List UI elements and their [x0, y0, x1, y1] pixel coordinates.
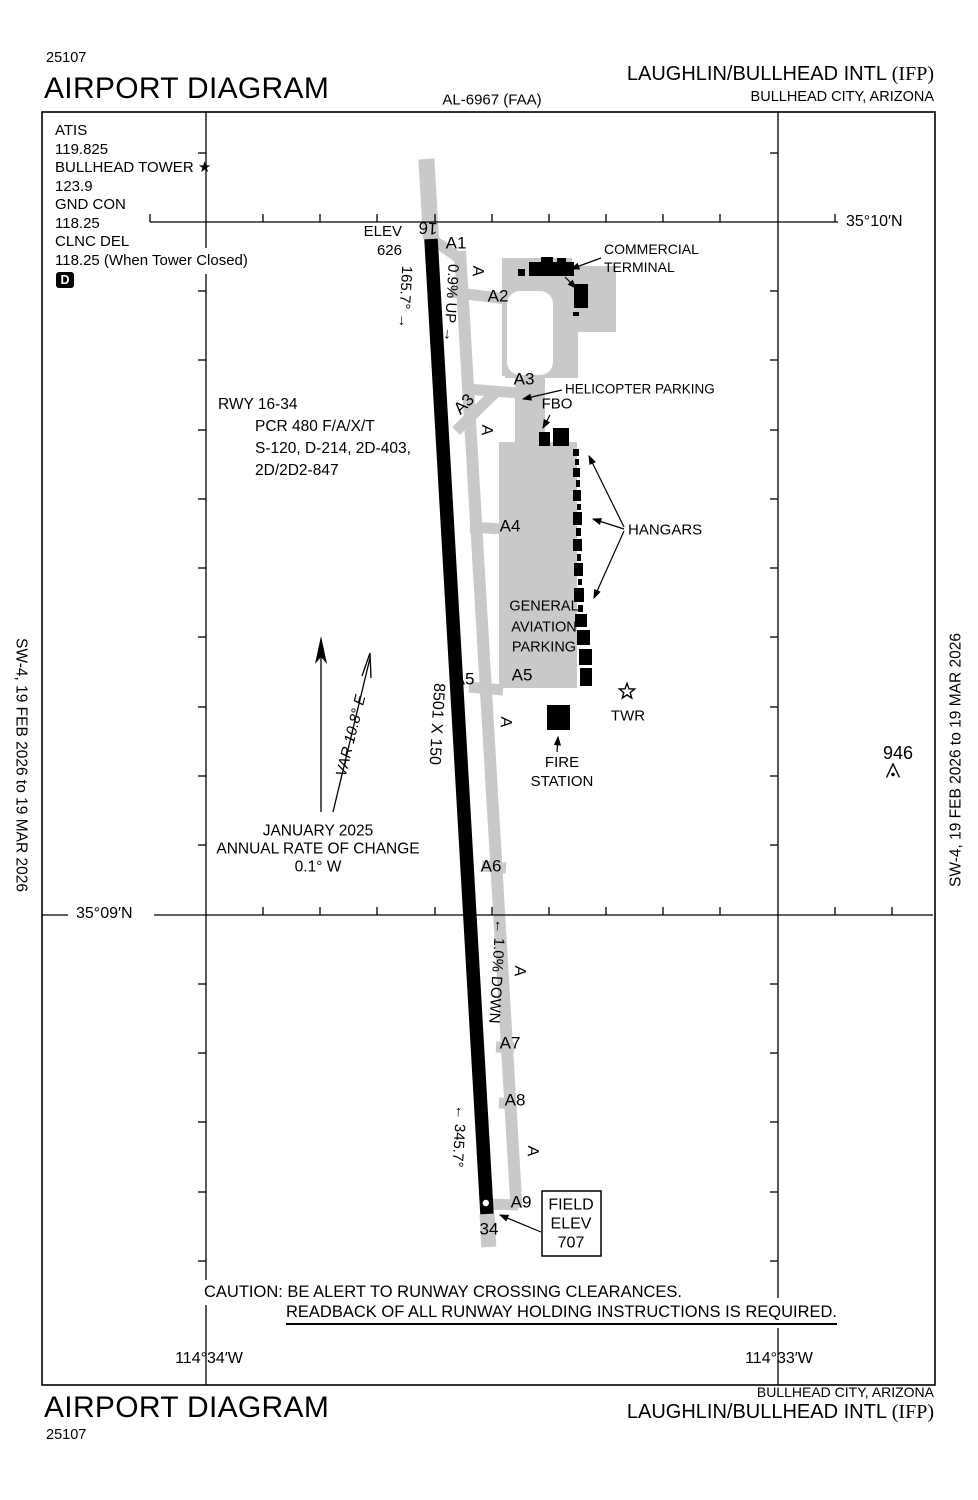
comm-line: 118.25	[55, 215, 248, 234]
hangars-label: HANGARS	[628, 523, 702, 540]
comm-line: CLNC DEL	[55, 233, 248, 252]
taxiway-label-a: A	[523, 1145, 541, 1157]
runway-34-number: 34	[480, 1219, 499, 1238]
tower-label: TWR	[611, 709, 645, 726]
taxiway-label-a2: A2	[488, 286, 509, 305]
lon-left-label: 114°34′W	[175, 1350, 243, 1368]
comm-frequencies-box: ATIS 119.825 BULLHEAD TOWER ★ 123.9 GND …	[55, 122, 248, 270]
caution-line2: READBACK OF ALL RUNWAY HOLDING INSTRUCTI…	[286, 1303, 837, 1325]
airport-id-text: (IFP)	[892, 1401, 934, 1423]
fire-station-line: STATION	[531, 772, 594, 791]
variation-rate-label: ANNUAL RATE OF CHANGE	[216, 840, 419, 857]
page-title-bottom: AIRPORT DIAGRAM	[44, 1391, 329, 1425]
right-margin-note: SW-4, 19 FEB 2026 to 19 MAR 2026	[947, 633, 964, 887]
variation-rate-value: 0.1° W	[295, 858, 342, 875]
taxiway-a4	[470, 527, 502, 529]
runway-data-block: RWY 16-34 PCR 480 F/A/X/T S-120, D-214, …	[218, 394, 411, 482]
airport-name-text: LAUGHLIN/BULLHEAD INTL	[627, 63, 886, 85]
plate-code-top: 25107	[46, 50, 86, 66]
hangars-arrow-mid	[593, 519, 624, 529]
taxiway-label-a5-west: A5	[454, 669, 475, 688]
taxiway-label-a1: A1	[446, 233, 467, 252]
airport-id-text: (IFP)	[892, 63, 934, 85]
digital-atis-icon: D	[56, 272, 74, 288]
field-elev-arrow	[500, 1215, 541, 1232]
fire-station-building	[547, 705, 570, 730]
lat-bottom-ticks	[263, 907, 892, 915]
field-elev-text: FIELD ELEV 707	[548, 1196, 593, 1253]
variation-date: JANUARY 2025	[263, 822, 374, 839]
page-title-top: AIRPORT DIAGRAM	[44, 72, 329, 106]
fire-station-label: FIRE STATION	[531, 753, 594, 791]
runway-16-elevation: ELEV 626	[364, 222, 402, 260]
taxiway-label-a: A	[510, 965, 528, 977]
ga-parking-label: GENERAL AVIATION PARKING	[509, 596, 578, 658]
obstacle-elevation-label: 946	[883, 743, 913, 763]
city-top: BULLHEAD CITY, ARIZONA	[751, 89, 934, 105]
lon-right-ticks	[770, 153, 778, 1261]
taxiway-label-a9: A9	[511, 1192, 532, 1211]
taxiway-label-a5-east: A5	[512, 665, 533, 684]
ga-parking-line: PARKING	[509, 637, 578, 658]
airport-name-text: LAUGHLIN/BULLHEAD INTL	[627, 1401, 886, 1423]
comm-line: GND CON	[55, 196, 248, 215]
airport-name-bottom: LAUGHLIN/BULLHEAD INTL (IFP)	[627, 1401, 934, 1423]
comm-line: ATIS	[55, 122, 248, 141]
taxiway-label-a: A	[477, 424, 495, 436]
lat-top-label: 35°10′N	[846, 213, 903, 231]
taxiway-label-a6: A6	[481, 856, 502, 875]
taxiway-label-a7: A7	[500, 1033, 521, 1052]
fire-station-line: FIRE	[531, 753, 594, 772]
airport-name-top: LAUGHLIN/BULLHEAD INTL (IFP)	[627, 63, 934, 85]
taxiway-label-a3: A3	[514, 369, 535, 388]
taxiway-label-a: A	[496, 716, 514, 728]
field-elev-line: FIELD	[548, 1196, 593, 1215]
runway-34-heading: ← 345.7°	[448, 1104, 468, 1168]
lat-bottom-label: 35°09′N	[76, 905, 133, 923]
runway-threshold-dot	[483, 1200, 489, 1206]
runway-data-line: RWY 16-34	[218, 394, 411, 416]
helicopter-parking-label: HELICOPTER PARKING	[565, 381, 715, 396]
apron-island	[507, 291, 553, 375]
ga-parking-line: AVIATION	[509, 617, 578, 638]
taxiway-label-a8: A8	[505, 1090, 526, 1109]
airport-diagram-page: 25107 AIRPORT DIAGRAM AL-6967 (FAA) LAUG…	[0, 0, 978, 1500]
plate-code-bottom: 25107	[46, 1427, 86, 1443]
taxiway-label-a: A	[468, 265, 486, 277]
runway-data-line: PCR 480 F/A/X/T	[255, 416, 411, 438]
left-margin-note: SW-4, 19 FEB 2026 to 19 MAR 2026	[12, 638, 29, 892]
comm-line: 123.9	[55, 178, 248, 197]
elev-value: 626	[364, 241, 402, 260]
runway-data-line: S-120, D-214, 2D-403,	[255, 438, 411, 460]
comm-line: 119.825	[55, 141, 248, 160]
hangars-arrow-south	[594, 531, 624, 598]
lon-left-ticks	[198, 153, 206, 1261]
ga-parking-line: GENERAL	[509, 596, 578, 617]
runway-slope-up: 0.9% UP →	[439, 264, 460, 343]
tower-star-icon	[619, 684, 634, 699]
commercial-terminal-line: TERMINAL	[604, 258, 699, 276]
city-bottom: BULLHEAD CITY, ARIZONA	[757, 1385, 934, 1401]
taxiway-label-a4: A4	[500, 516, 521, 535]
caution-line1: CAUTION: BE ALERT TO RUNWAY CROSSING CLE…	[204, 1283, 682, 1301]
runway-16-heading: 165.7° →	[394, 265, 414, 329]
commercial-terminal-label: COMMERCIAL TERMINAL	[604, 240, 699, 276]
chart-reference: AL-6967 (FAA)	[442, 93, 541, 110]
commercial-terminal-line: COMMERCIAL	[604, 240, 699, 258]
field-elev-line: ELEV	[548, 1215, 593, 1234]
obstacle-icon	[887, 764, 900, 778]
comm-line: BULLHEAD TOWER ★	[55, 159, 248, 178]
hangars-arrow-north	[589, 456, 624, 527]
comm-line: 118.25 (When Tower Closed)	[55, 252, 248, 271]
fire-station-arrow	[557, 737, 558, 752]
lon-right-label: 114°33′W	[745, 1350, 813, 1368]
field-elev-line: 707	[548, 1234, 593, 1253]
runway-16-number: 16	[418, 218, 438, 238]
fbo-label: FBO	[542, 397, 573, 414]
lat-top-ticks	[150, 214, 835, 222]
runway-data-line: 2D/2D2-847	[255, 460, 411, 482]
elev-label: ELEV	[364, 222, 402, 241]
